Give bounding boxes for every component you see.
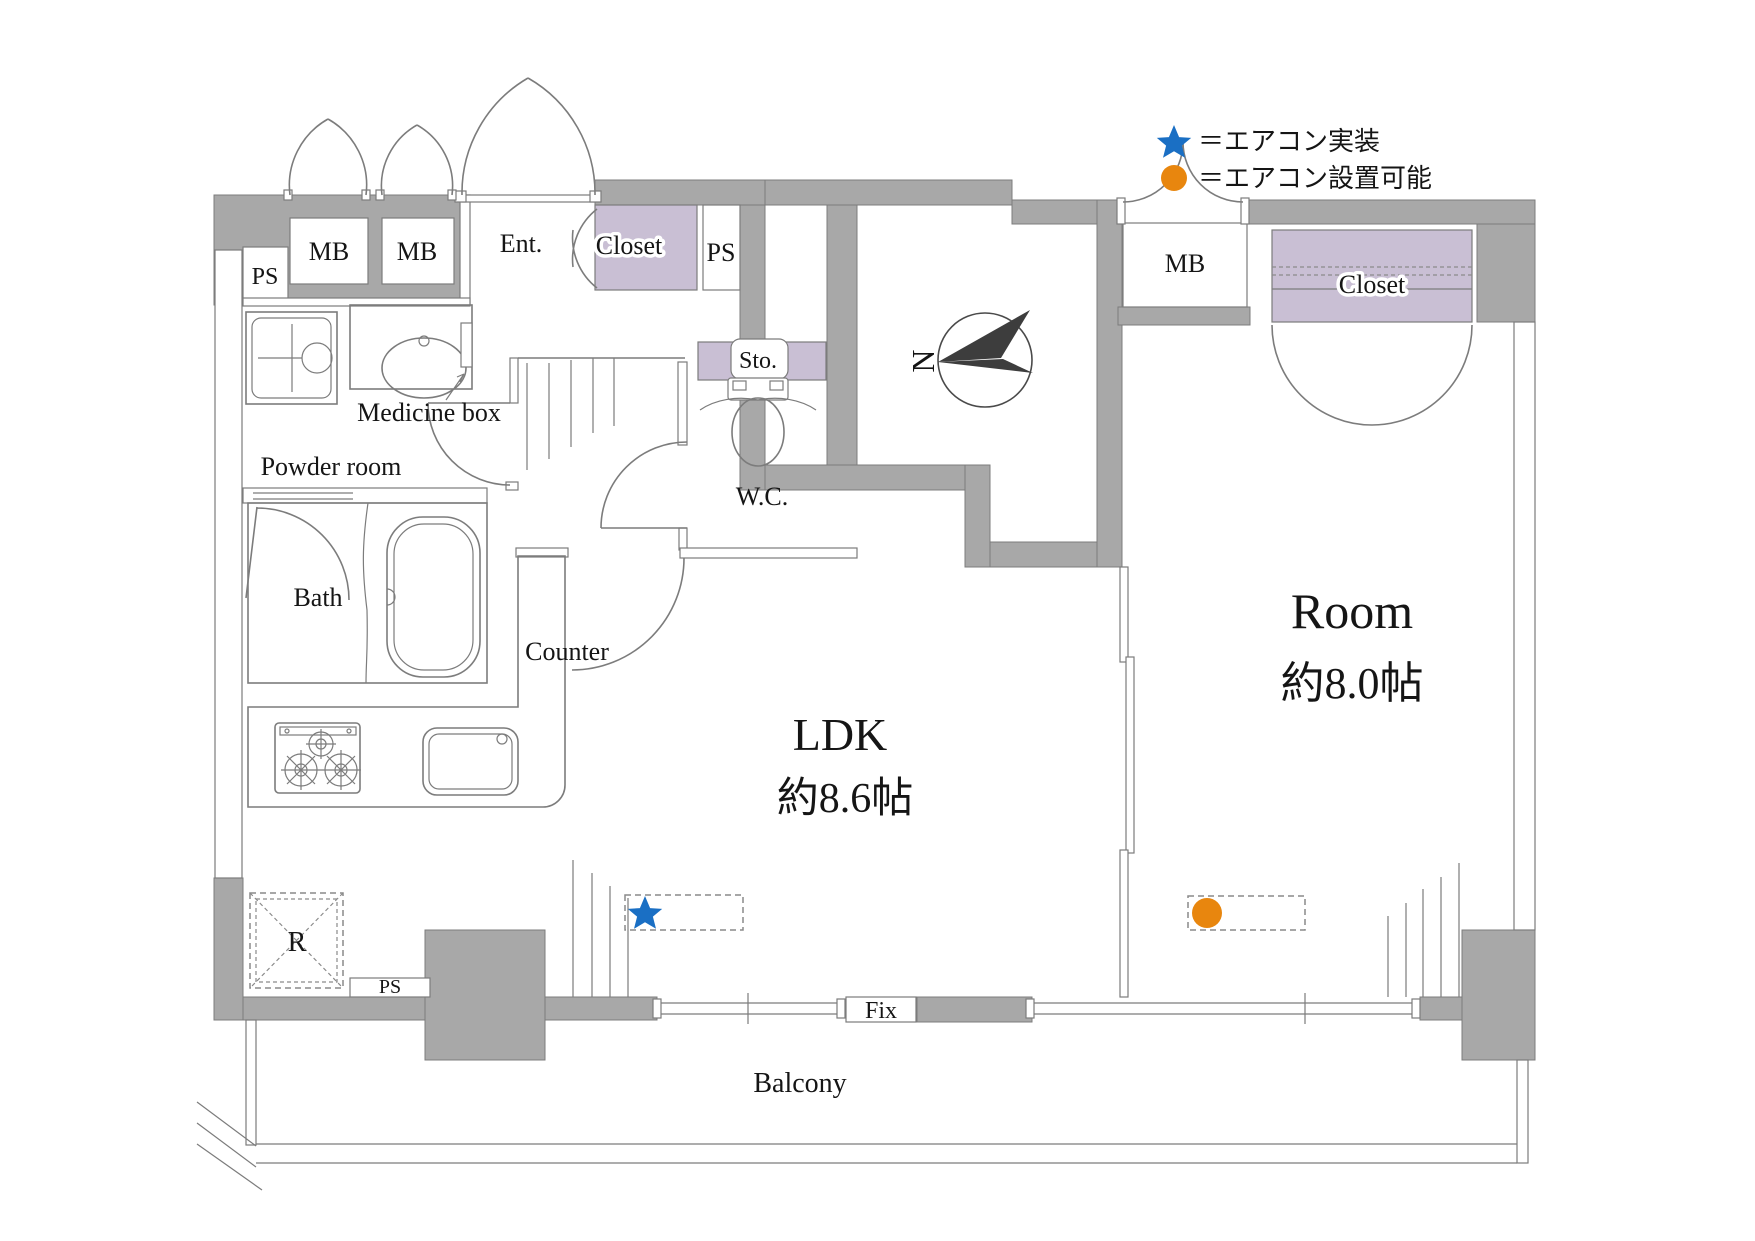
ac-possible-circle (1192, 898, 1222, 928)
kitchen-sink-inner (429, 734, 512, 789)
label-room-size: 約8.0帖 (1281, 659, 1424, 708)
label-ldk-size: 約8.6帖 (777, 776, 914, 822)
laundry-pan (246, 312, 337, 404)
powder-bath-wall (243, 488, 487, 503)
door-jamb (376, 190, 384, 200)
wc-west-wall-lower (679, 528, 687, 550)
medicine-box-arrow (446, 374, 464, 400)
label-refrigerator: R (288, 927, 307, 958)
legend-star-icon (1157, 125, 1191, 158)
label-entrance: Ent. (500, 229, 543, 258)
wall-segment (765, 465, 990, 490)
laundry-pan-cross (258, 324, 302, 392)
window-sash-lines-room (1388, 863, 1459, 997)
bath-room-outline (248, 503, 487, 683)
label-fix: Fix (865, 998, 897, 1024)
compass: N (905, 310, 1033, 407)
compass-needle-lower (938, 359, 1033, 373)
label-bath: Bath (293, 583, 342, 612)
balcony (197, 1020, 1528, 1190)
balcony-right-wall (1517, 1060, 1528, 1163)
wall-segment (827, 205, 857, 490)
label-wc: W.C. (736, 482, 789, 511)
right-wall-hollow (1514, 322, 1535, 930)
label-ldk: LDK (793, 709, 888, 760)
balcony-railing (256, 1144, 1517, 1163)
wall-segment (1118, 307, 1250, 325)
compass-needle-upper (938, 310, 1030, 362)
burner-spokes (306, 729, 336, 759)
sliding-partition-b (1126, 657, 1134, 853)
wall-segment (1243, 200, 1535, 224)
entrance-closet-folding-door (573, 209, 597, 288)
label-room: Room (1291, 583, 1413, 639)
label-powder-room: Powder room (261, 452, 402, 481)
legend: ＝エアコン実装 ＝エアコン設置可能 (1157, 125, 1432, 193)
label-balcony: Balcony (753, 1068, 846, 1099)
label-room-closet: Closet (1339, 270, 1406, 299)
sliding-window-room (1032, 1003, 1413, 1014)
wall-segment (595, 180, 765, 205)
left-wall-hollow (215, 250, 242, 878)
entry-door-arc (462, 78, 595, 195)
wc-south-wall (680, 548, 857, 558)
stove-back-bar (280, 727, 356, 735)
entry-door-wall (462, 195, 595, 202)
wall-segment (1097, 200, 1122, 567)
window-cap (653, 999, 661, 1018)
legend-circle-icon (1161, 165, 1187, 191)
window-cap (1026, 999, 1034, 1018)
ac-installed-star (628, 896, 662, 929)
wall-segment (214, 878, 243, 1020)
mb-door-arc (289, 119, 366, 195)
wc-door-arc (601, 442, 687, 528)
bathtub-inner (394, 524, 473, 670)
laundry-drain (302, 343, 332, 373)
kitchen-faucet (497, 734, 507, 744)
burner-spokes (321, 750, 361, 790)
ent-west-wall (460, 195, 470, 305)
wall-segment (965, 465, 990, 567)
kitchen-sink-outer (423, 728, 518, 795)
window-cap (1412, 999, 1420, 1018)
label-ps-top: PS (252, 264, 279, 290)
wall-cap (506, 482, 518, 490)
label-counter: Counter (525, 637, 609, 666)
label-mb-2: MB (397, 237, 437, 266)
ac-annotations (625, 895, 1305, 930)
wall-segment (1477, 224, 1535, 322)
wall-segment (1462, 930, 1535, 1060)
sliding-window-ldk (660, 1003, 838, 1014)
window-cap (837, 999, 845, 1018)
legend-circle-label: ＝エアコン設置可能 (1198, 164, 1432, 193)
wall-segment (917, 997, 1032, 1022)
sliding-partition-c (1120, 850, 1128, 997)
genkan-step-lines (527, 358, 614, 470)
wall-segment (765, 180, 1012, 205)
wc-west-wall (678, 362, 687, 445)
stove-knob (347, 729, 351, 733)
floorplan-canvas: N ＝エアコン実装 ＝エアコン設置可能 PS MB MB Ent. Closet… (0, 0, 1755, 1241)
door-jamb (284, 190, 292, 200)
medicine-box-unit (461, 323, 472, 367)
label-ps-bottom: PS (379, 976, 401, 998)
window-sash-lines-ldk (573, 860, 628, 997)
label-storage: Sto. (739, 348, 777, 374)
room-closet-door-arc (1272, 325, 1472, 425)
legend-star-label: ＝エアコン実装 (1198, 127, 1380, 156)
compass-north-label: N (905, 349, 941, 372)
bathtub-outer (387, 517, 480, 677)
label-ps-entrance: PS (707, 238, 736, 267)
stove-knob (285, 729, 289, 733)
bathroom (248, 493, 487, 683)
wall-segment (1420, 997, 1462, 1020)
floorplan-page: N ＝エアコン実装 ＝エアコン設置可能 PS MB MB Ent. Closet… (0, 0, 1755, 1241)
label-medicine-box: Medicine box (357, 398, 501, 427)
label-entrance-closet: Closet (596, 231, 663, 260)
burner-spokes (281, 750, 321, 790)
door-jamb (455, 191, 466, 202)
wall-segment (425, 930, 545, 1060)
vanity (350, 305, 472, 400)
mb-door-arc (381, 125, 452, 195)
hall-west-wall (510, 358, 518, 403)
balcony-left-wall (246, 1020, 256, 1145)
bath-partition (363, 503, 368, 683)
label-mb-room: MB (1165, 249, 1205, 278)
sliding-partition-a (1120, 567, 1128, 662)
label-mb-1: MB (309, 237, 349, 266)
